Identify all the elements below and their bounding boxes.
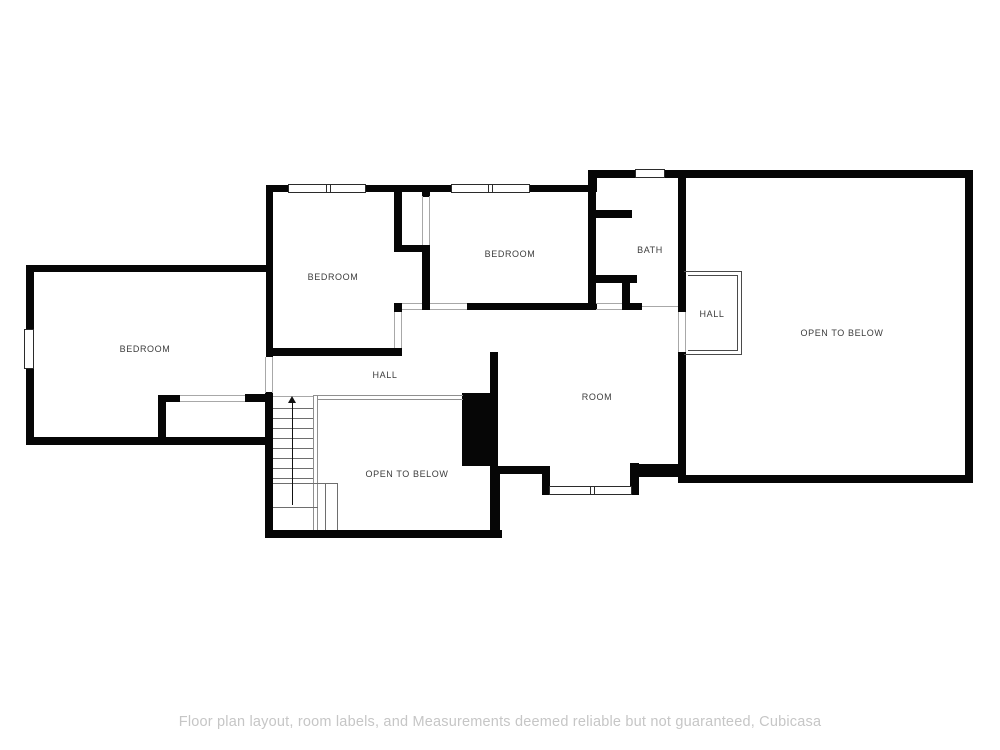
stair-tread-line xyxy=(273,418,313,419)
door-opening-line xyxy=(394,312,395,348)
stairwell-railing-line xyxy=(688,275,738,276)
room-label-bath: BATH xyxy=(637,245,663,255)
window xyxy=(549,486,632,495)
footer-disclaimer: Floor plan layout, room labels, and Meas… xyxy=(0,714,1000,730)
room-label-hall-west: HALL xyxy=(373,370,398,380)
door-opening-line xyxy=(272,357,273,393)
wall-segment xyxy=(26,437,273,445)
stairwell-railing-line xyxy=(737,275,738,351)
wall-segment xyxy=(663,170,973,178)
door-opening-line xyxy=(180,401,245,402)
wall-segment xyxy=(639,464,682,477)
wall-segment xyxy=(678,170,686,312)
wall-segment xyxy=(265,530,502,538)
wall-segment xyxy=(364,185,453,192)
stairwell-railing-line xyxy=(684,354,742,355)
door-opening-line xyxy=(429,196,430,245)
stair-tread-line xyxy=(273,468,313,469)
wall-segment xyxy=(622,303,642,310)
stairwell-railing-line xyxy=(688,350,738,351)
window-mullion xyxy=(492,185,493,192)
room-label-open-to-below-east: OPEN TO BELOW xyxy=(801,328,884,338)
stairwell-railing-line xyxy=(741,271,742,355)
stair-tread-line xyxy=(273,478,313,479)
stair-tread-line xyxy=(325,483,326,530)
door-opening-line xyxy=(430,309,467,310)
wall-segment xyxy=(26,265,273,272)
wall-segment xyxy=(490,466,500,538)
room-label-hall-east: HALL xyxy=(700,309,725,319)
stair-tread-line xyxy=(273,458,313,459)
wall-segment xyxy=(467,303,597,310)
door-opening-line xyxy=(422,196,423,245)
window-mullion xyxy=(590,487,591,494)
door-opening-line xyxy=(402,303,422,304)
wall-segment xyxy=(965,170,973,483)
stair-tread-line xyxy=(273,483,337,484)
door-opening-line xyxy=(596,309,622,310)
stair-direction-arrow-line xyxy=(292,402,293,505)
open-to-below-boundary-line xyxy=(313,395,463,396)
window-mullion xyxy=(594,487,595,494)
floorplan-canvas: BEDROOMBEDROOMBEDROOMBATHHALLHALLROOMOPE… xyxy=(0,0,1000,750)
door-opening-line xyxy=(596,303,622,304)
door-opening-line xyxy=(642,306,678,307)
wall-segment xyxy=(158,395,180,402)
door-opening-line xyxy=(265,357,266,393)
floorplan-page: BEDROOMBEDROOMBEDROOMBATHHALLHALLROOMOPE… xyxy=(0,0,1000,750)
window xyxy=(635,169,665,178)
stair-tread-line xyxy=(337,483,338,530)
wall-segment xyxy=(394,192,402,250)
wall-segment xyxy=(588,170,596,310)
window-mullion xyxy=(488,185,489,192)
door-opening-line xyxy=(402,309,422,310)
room-label-bedroom-mid: BEDROOM xyxy=(308,272,359,282)
door-opening-line xyxy=(401,312,402,348)
open-to-below-boundary-line xyxy=(317,399,463,400)
stair-tread-line xyxy=(273,408,313,409)
wall-segment xyxy=(596,275,637,283)
door-opening-line xyxy=(678,312,679,352)
stair-tread-line xyxy=(273,438,313,439)
wall-segment xyxy=(266,348,402,356)
wall-segment xyxy=(528,185,590,192)
wall-segment xyxy=(596,210,632,218)
door-opening-line xyxy=(180,395,245,396)
stair-tread-line xyxy=(273,448,313,449)
window-mullion xyxy=(326,185,327,192)
room-label-bedroom-north: BEDROOM xyxy=(485,249,536,259)
wall-segment xyxy=(678,475,973,483)
wall-segment xyxy=(422,245,430,310)
window xyxy=(24,329,34,369)
door-opening-line xyxy=(430,303,467,304)
room-label-room: ROOM xyxy=(582,392,612,402)
door-opening-line xyxy=(685,312,686,352)
open-to-below-boundary-line xyxy=(313,395,314,530)
stairwell-railing-line xyxy=(684,271,742,272)
stair-tread-line xyxy=(273,428,313,429)
room-label-bedroom-west: BEDROOM xyxy=(120,344,171,354)
stair-direction-arrow-head xyxy=(288,396,296,403)
room-label-open-to-below-stair: OPEN TO BELOW xyxy=(366,469,449,479)
wall-segment xyxy=(394,303,402,312)
window xyxy=(451,184,530,193)
solid-floor-mass xyxy=(462,393,498,466)
wall-segment xyxy=(158,395,166,445)
wall-segment xyxy=(265,392,273,538)
window xyxy=(288,184,366,193)
open-to-below-boundary-line xyxy=(317,395,318,530)
window-mullion xyxy=(330,185,331,192)
stair-tread-line xyxy=(273,507,318,508)
